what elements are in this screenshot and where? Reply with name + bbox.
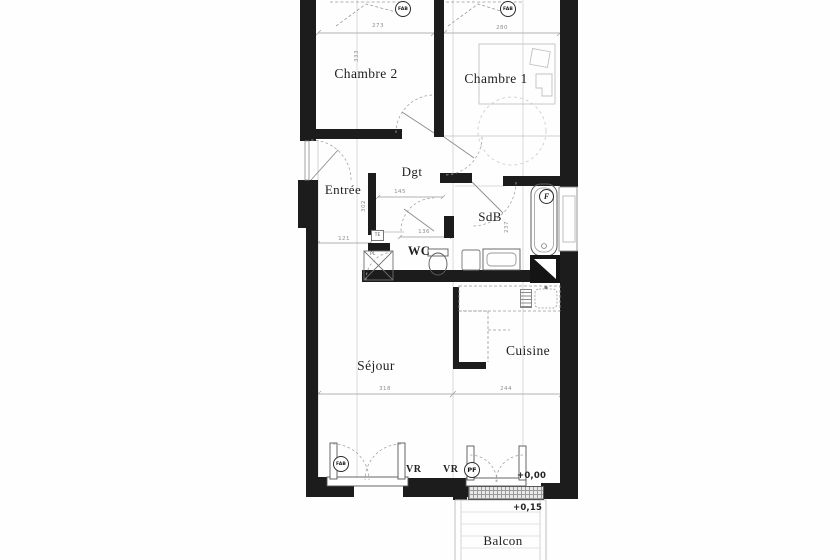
dim-cuisine-width: 244 [494,386,518,392]
dim-chambre2-width: 273 [366,23,390,29]
fab-text: FAB [398,7,408,12]
balcony-threshold-hatch [468,486,544,500]
room-label-entree: Entrée [313,182,373,198]
dim-entree-width: 121 [332,236,356,242]
fab-text: FAB [336,462,346,467]
dim-dgt-width: 145 [388,189,412,195]
pf-text: PF [467,466,476,474]
f-text: F [544,192,549,201]
dim-sdb-height: 237 [504,219,510,235]
wc-door-arc [401,198,434,231]
chambre2-door-arc [396,95,434,133]
washing-machine [462,250,480,270]
room-label-chambre2: Chambre 2 [320,66,412,82]
wall-recess [559,187,577,251]
ceiling-light-circle [478,97,546,165]
dim-chambre1-width: 280 [490,25,514,31]
top-windows [330,2,524,26]
pl-label: PL [370,252,375,257]
room-label-cuisine: Cuisine [488,343,568,359]
room-label-balcon: Balcon [463,533,543,549]
technical-shaft [530,255,560,283]
fab-marker-top-left: FAB [395,1,411,17]
entrance-door-leaf [311,150,338,180]
level-balcony: +0,15 [513,503,542,513]
dim-entree-height: 302 [361,198,367,214]
room-label-sejour: Séjour [336,358,416,374]
kitchen-appliance [520,289,532,308]
chambre2-door-leaf [402,112,434,133]
wc-door-leaf [404,209,434,231]
vanity-sink [483,249,520,270]
room-label-dgt: Dgt [392,164,432,180]
chambre1-door-arc [444,137,482,175]
f-marker-bathtub: F [539,189,554,204]
pf-marker-window-right: PF [464,462,480,478]
fab-marker-window-left: FAB [333,456,349,472]
vr-label-left: VR [406,464,421,475]
vr-label-right: VR [443,464,458,475]
kitchen-sink [535,289,557,308]
room-label-chambre1: Chambre 1 [450,71,542,87]
entrance-threshold [305,141,309,180]
fab-marker-top-right: FAB [500,1,516,17]
te-label: TE [371,230,384,241]
room-label-wc: WC [399,244,439,259]
floor-plan-drawing [0,0,840,560]
dim-wc-width: 136 [412,229,436,235]
floor-plan-canvas: Chambre 2 Chambre 1 Entrée Dgt SdB WC Sé… [0,0,840,560]
dim-chambre2-height: 333 [354,48,360,64]
chambre1-door-leaf [444,137,474,158]
window-left-sill [327,477,408,486]
level-main-floor: +0,00 [517,471,546,481]
dim-sejour-width: 318 [373,386,397,392]
fab-text: FAB [503,7,513,12]
